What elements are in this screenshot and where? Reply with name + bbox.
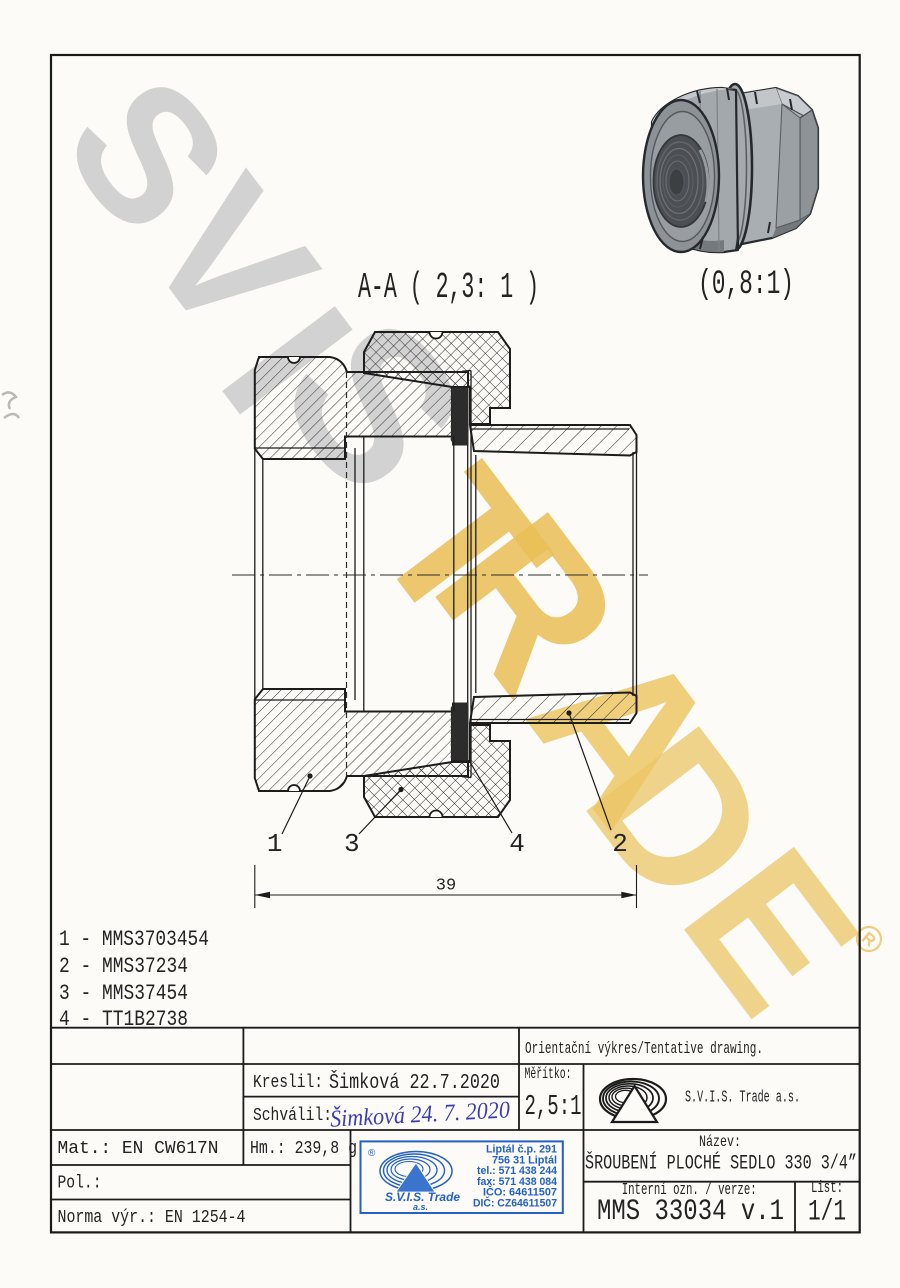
- svg-text:®: ®: [368, 1148, 376, 1159]
- svg-text:2: 2: [612, 829, 628, 859]
- svg-text:(0,8:1): (0,8:1): [698, 266, 794, 304]
- svg-text:MMS 33034 v.1: MMS 33034 v.1: [597, 1195, 784, 1229]
- svg-text:39: 39: [436, 877, 456, 896]
- svg-text:Norma výr.: EN 1254-4: Norma výr.: EN 1254-4: [58, 1207, 246, 1228]
- svg-text:1/1: 1/1: [808, 1196, 846, 1230]
- svg-text:A-A ( 2,3: 1 ): A-A ( 2,3: 1 ): [358, 267, 539, 308]
- svg-text:4: 4: [509, 829, 525, 859]
- svg-text:DIČ: CZ64611507: DIČ: CZ64611507: [473, 1197, 557, 1210]
- svg-text:3 - MMS37454: 3 - MMS37454: [59, 981, 188, 1006]
- svg-text:Měřítko:: Měřítko:: [525, 1065, 572, 1083]
- svg-text:2,5:1: 2,5:1: [525, 1090, 582, 1123]
- svg-text:Pol.:: Pol.:: [58, 1173, 102, 1194]
- svg-text:Orientační výkres/Tentative dr: Orientační výkres/Tentative drawing.: [525, 1040, 763, 1059]
- svg-text:Mat.: EN CW617N: Mat.: EN CW617N: [58, 1138, 219, 1159]
- svg-text:Schválil:: Schválil:: [253, 1106, 332, 1126]
- svg-text:a.s.: a.s.: [413, 1202, 428, 1212]
- svg-text:1: 1: [267, 829, 283, 859]
- svg-text:2 - MMS37234: 2 - MMS37234: [59, 954, 188, 979]
- svg-text:Kreslil:: Kreslil:: [253, 1073, 323, 1093]
- svg-text:Hm.: 239,8 g: Hm.: 239,8 g: [250, 1138, 357, 1159]
- svg-text:Název:: Název:: [699, 1133, 741, 1151]
- svg-text:Šimková 22.7.2020: Šimková 22.7.2020: [329, 1071, 500, 1095]
- svg-text:1 - MMS3703454: 1 - MMS3703454: [59, 927, 209, 952]
- svg-text:S.V.I.S. Trade a.s.: S.V.I.S. Trade a.s.: [685, 1088, 800, 1107]
- svg-text:3: 3: [344, 829, 360, 859]
- svg-text:ŠROUBENÍ PLOCHÉ SEDLO 330 3/4”: ŠROUBENÍ PLOCHÉ SEDLO 330 3/4”: [585, 1152, 857, 1176]
